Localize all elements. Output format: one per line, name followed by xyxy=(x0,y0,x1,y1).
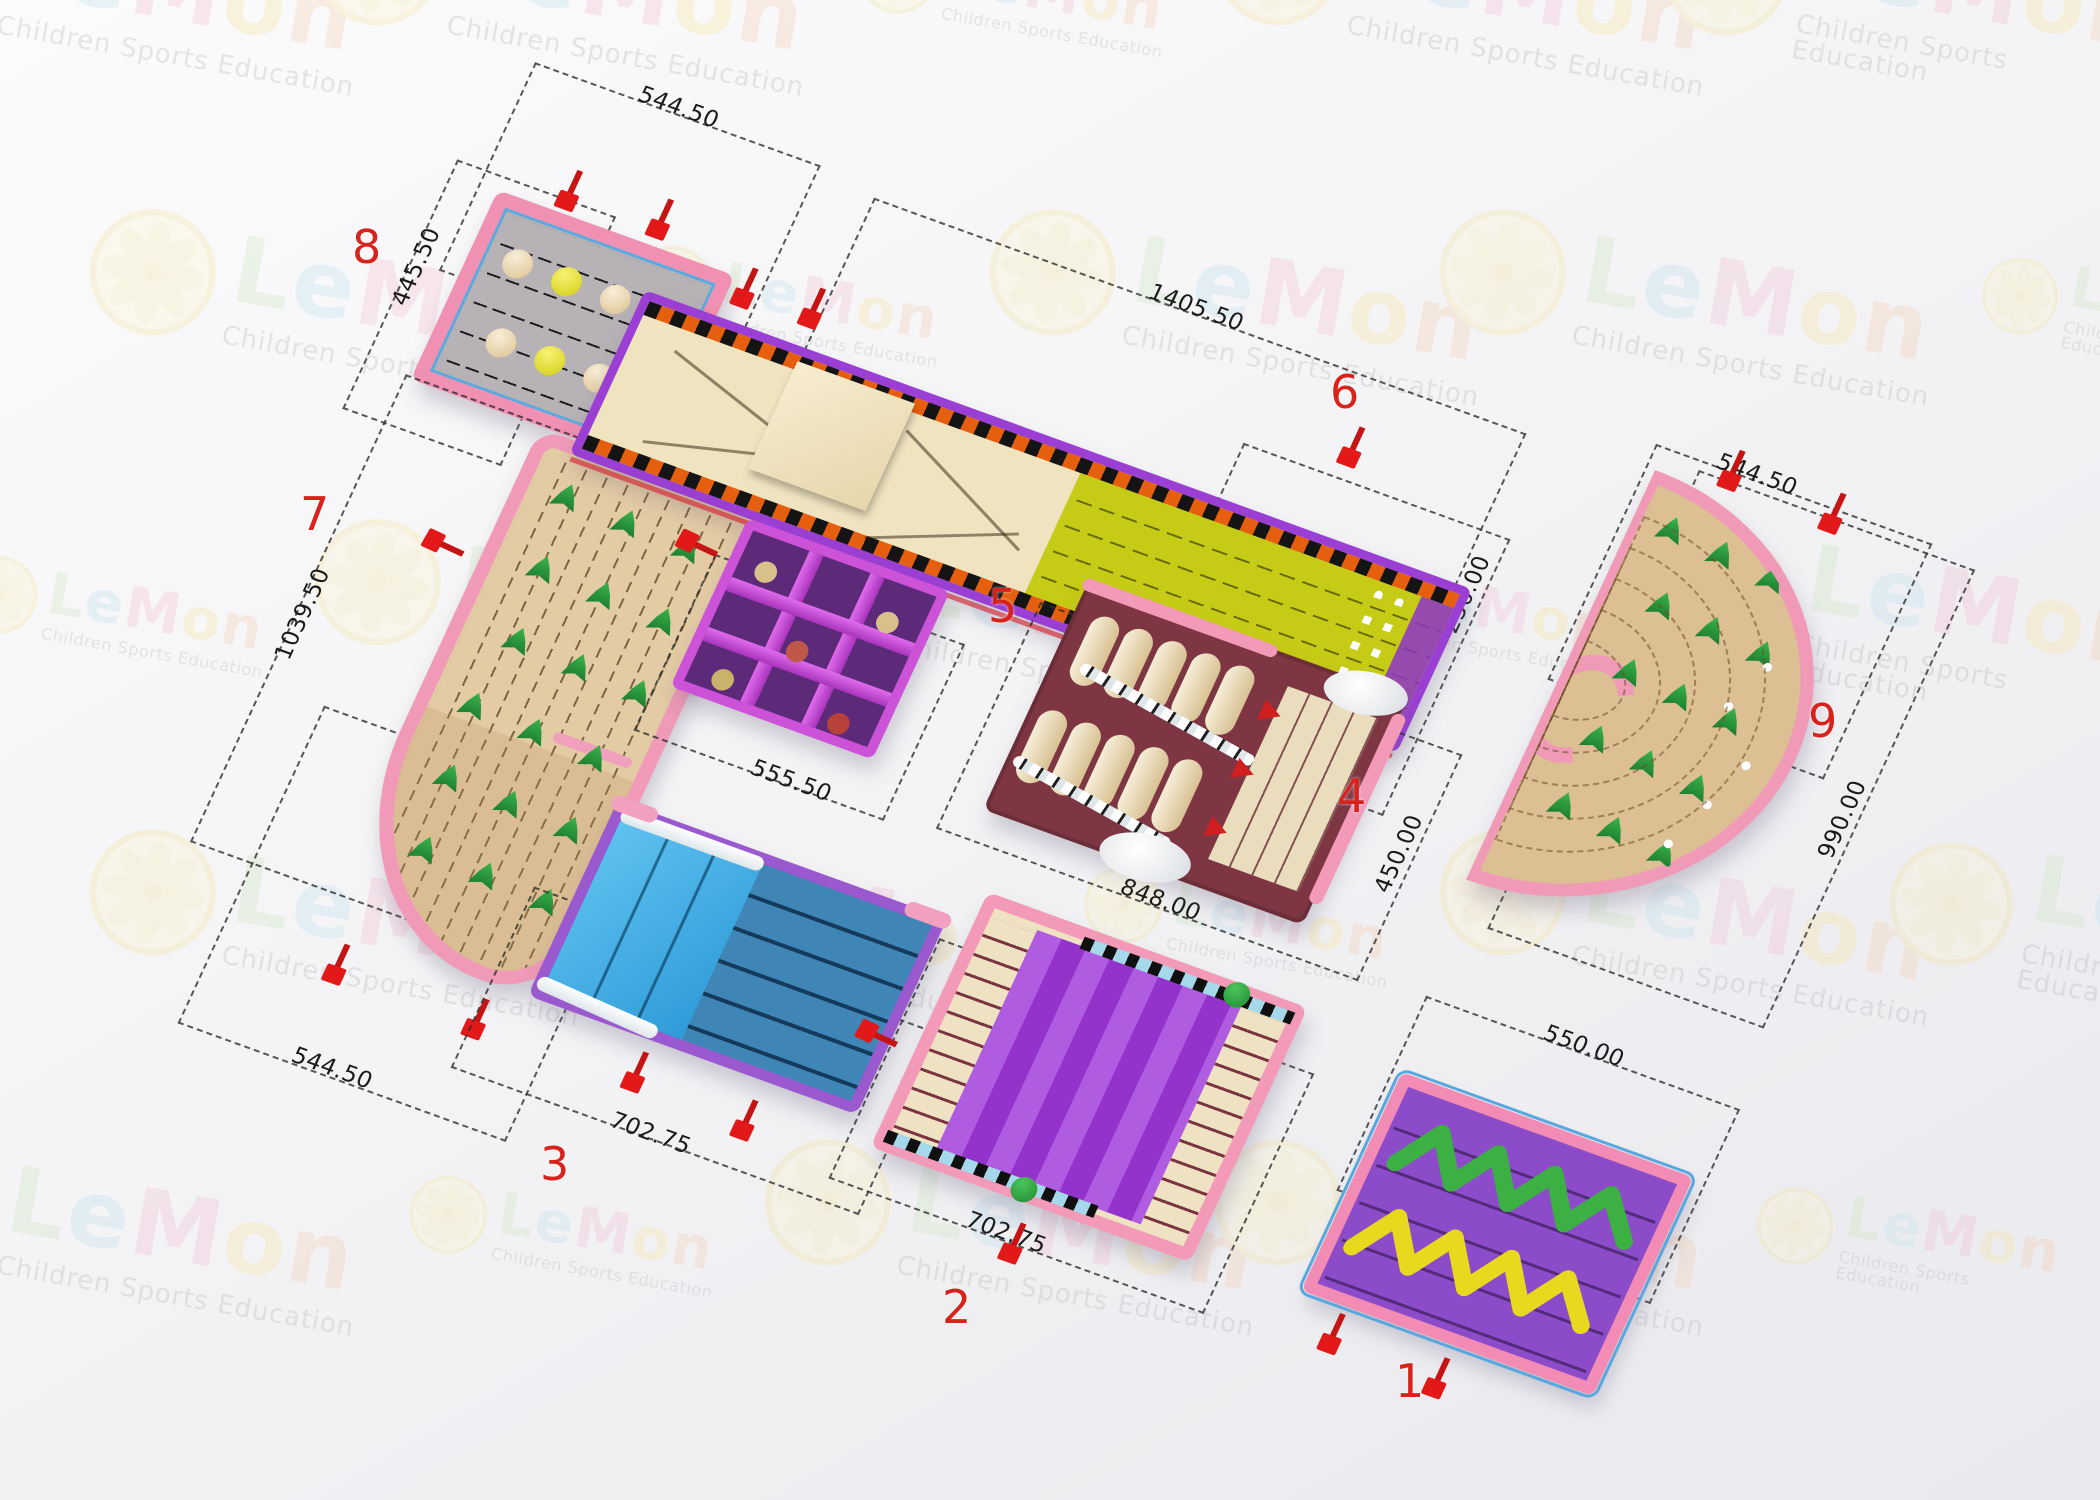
watermark-text: LeMon Children Sports Education xyxy=(2014,843,2100,1054)
watermark-letter: n xyxy=(1854,885,1939,1002)
watermark-letter: o xyxy=(2014,563,2097,680)
watermark-brand: LeMon xyxy=(1841,1188,2067,1282)
watermark-letter: o xyxy=(665,0,748,61)
unit-number-7: 7 xyxy=(300,487,329,541)
watermark-letter: n xyxy=(2078,0,2100,71)
watermark-letter: e xyxy=(1634,227,1716,344)
watermark-subtitle: Children Sports Education xyxy=(40,626,264,681)
lemon-slice-icon xyxy=(0,0,3,38)
lemon-slice-icon xyxy=(1652,0,1800,49)
unit-number-6: 6 xyxy=(1330,365,1359,419)
watermark-subtitle: Children Sports Education xyxy=(0,12,356,101)
lemon-slice-icon xyxy=(1974,250,2066,343)
net-pocket-ball xyxy=(823,710,853,738)
watermark-brand: LeMon xyxy=(1351,0,1724,68)
watermark-subtitle: Children Sports Education xyxy=(0,1252,356,1341)
watermark-letter: L xyxy=(2024,835,2100,951)
watermark-subtitle: Children Sports Education xyxy=(1789,11,2100,124)
watermark-letter: L xyxy=(224,216,302,332)
watermark-letter: L xyxy=(943,0,992,12)
watermark-letter: n xyxy=(2078,574,2100,691)
watermark-brand: LeMon xyxy=(43,565,274,660)
watermark-text: LeMon Children Sports Education xyxy=(40,565,275,681)
watermark-letter: o xyxy=(1340,254,1423,371)
watermark-brand: LeMon xyxy=(451,0,824,68)
watermark-letter: n xyxy=(1116,0,1169,43)
ramp-platform xyxy=(748,361,915,511)
ramp-line xyxy=(865,533,1019,540)
watermark-letter: n xyxy=(729,0,814,72)
watermark-text: LeMon Children Sports Education xyxy=(2059,258,2100,389)
net-bar xyxy=(801,573,884,728)
watermark-subtitle: Children Sports Education xyxy=(1570,322,1932,411)
layout-drawing: LeMon Children Sports Education LeMon Ch… xyxy=(0,0,2100,1500)
watermark-tile: LeMon Children Sports Education xyxy=(1428,197,1949,413)
watermark-brand: LeMon xyxy=(1,0,374,68)
lemon-slice-icon xyxy=(1203,0,1354,38)
watermark-letter: o xyxy=(1974,1207,2025,1279)
watermark-letter: n xyxy=(1629,0,1714,72)
watermark-letter: e xyxy=(59,1157,141,1274)
watermark-letter: M xyxy=(1473,0,1584,49)
watermark-letter: n xyxy=(2013,1214,2066,1287)
watermark-tile: LeMon Children Sports Education xyxy=(852,0,1175,62)
watermark-brand: LeMon xyxy=(1576,224,1949,378)
net-pocket-ball xyxy=(751,558,781,586)
watermark-letter: o xyxy=(176,583,227,655)
watermark-letter: n xyxy=(279,0,364,72)
watermark-letter: M xyxy=(573,0,684,49)
watermark-letter: e xyxy=(530,1186,581,1258)
watermark-letter: e xyxy=(80,566,131,638)
watermark-subtitle: Children Sports Education xyxy=(2014,941,2100,1054)
watermark-brand: LeMon xyxy=(1,1154,374,1308)
watermark-letter: o xyxy=(215,1184,298,1301)
watermark-letter: e xyxy=(2083,845,2100,962)
watermark-brand: LeMon xyxy=(2025,843,2100,995)
lemon-slice-icon xyxy=(1749,1180,1841,1273)
watermark-letter: n xyxy=(1404,265,1489,382)
watermark-letter: o xyxy=(2014,0,2097,59)
watermark-letter: L xyxy=(493,1180,542,1252)
watermark-letter: L xyxy=(1574,216,1652,332)
watermark-text: LeMon Children Sports Education xyxy=(1834,1188,2067,1319)
watermark-brand: LeMon xyxy=(1800,0,2100,65)
watermark-letter: M xyxy=(123,0,234,49)
watermark-letter: n xyxy=(279,1195,364,1312)
lemon-slice-icon xyxy=(303,0,454,38)
lemon-slice-icon xyxy=(0,1127,3,1278)
lemon-slice-icon xyxy=(78,197,229,348)
watermark-text: LeMon Children Sports Education xyxy=(490,1185,725,1301)
watermark-brand: LeMon xyxy=(2066,258,2100,352)
watermark-letter: L xyxy=(0,1146,78,1262)
watermark-letter: M xyxy=(1922,0,2033,48)
watermark-letter: L xyxy=(449,0,527,22)
watermark-letter: e xyxy=(1409,0,1491,33)
watermark-letter: n xyxy=(666,1210,719,1283)
watermark-tile: LeMon Children Sports Education xyxy=(1876,818,2100,1054)
watermark-letter: o xyxy=(215,0,298,61)
unit-number-5: 5 xyxy=(988,579,1017,633)
watermark-tile: LeMon Children Sports Education xyxy=(1748,1173,2067,1319)
watermark-letter: n xyxy=(216,590,269,663)
watermark-letter: o xyxy=(1076,0,1127,36)
watermark-letter: e xyxy=(59,0,141,33)
watermark-letter: M xyxy=(1019,0,1088,29)
white-dot xyxy=(1740,760,1752,771)
watermark-letter: L xyxy=(43,560,92,632)
watermark-letter: o xyxy=(626,1203,677,1275)
lemon-slice-icon xyxy=(1877,829,2025,979)
watermark-letter: M xyxy=(1698,238,1809,360)
watermark-letter: e xyxy=(509,0,591,33)
watermark-subtitle: Children Sports Education xyxy=(490,1246,714,1301)
watermark-letter: M xyxy=(123,1168,234,1290)
watermark-text: LeMon Children Sports Education xyxy=(1570,224,1949,411)
watermark-tile: LeMon Children Sports Education xyxy=(1651,0,2100,124)
watermark-text: LeMon Children Sports Education xyxy=(940,0,1175,61)
watermark-subtitle: Children Sports Education xyxy=(1834,1249,2056,1319)
lemon-slice-icon xyxy=(852,0,945,21)
unit-number-9: 9 xyxy=(1808,694,1837,748)
unit-number-3: 3 xyxy=(540,1137,569,1191)
watermark-letter: M xyxy=(1916,1197,1985,1272)
watermark-letter: L xyxy=(1349,0,1427,22)
watermark-subtitle: Children Sports Education xyxy=(2059,319,2100,389)
unit-number-2: 2 xyxy=(942,1280,971,1334)
lemon-slice-icon xyxy=(0,548,45,641)
watermark-tile: LeMon Children Sports Education xyxy=(0,1127,374,1343)
watermark-letter: e xyxy=(1877,1190,1928,1262)
watermark-text: LeMon Children Sports Education xyxy=(0,0,374,101)
net-pocket-ball xyxy=(708,666,738,694)
unit-number-1: 1 xyxy=(1395,1354,1424,1408)
unit-number-8: 8 xyxy=(352,220,381,274)
watermark-text: LeMon Children Sports Education xyxy=(1345,0,1724,101)
lemon-slice-icon xyxy=(402,1168,495,1261)
watermark-letter: L xyxy=(2065,253,2100,325)
watermark-letter: e xyxy=(980,0,1031,19)
watermark-subtitle: Children Sports Education xyxy=(940,6,1164,61)
watermark-text: LeMon Children Sports Education xyxy=(0,1154,374,1341)
watermark-letter: L xyxy=(1840,1183,1889,1255)
watermark-brand: LeMon xyxy=(943,0,1174,40)
anchor-stake xyxy=(1312,1310,1354,1360)
watermark-letter: n xyxy=(1854,265,1939,382)
watermark-letter: M xyxy=(119,573,188,648)
watermark-letter: e xyxy=(1858,0,1940,32)
watermark-letter: o xyxy=(1565,0,1648,61)
watermark-letter: L xyxy=(0,0,78,22)
watermark-letter: M xyxy=(569,1193,638,1268)
watermark-tile: LeMon Children Sports Education xyxy=(1973,243,2100,389)
watermark-tile: LeMon Children Sports Education xyxy=(0,0,374,103)
watermark-tile: LeMon Children Sports Education xyxy=(1203,0,1724,103)
watermark-letter: o xyxy=(1790,254,1873,371)
watermark-brand: LeMon xyxy=(493,1185,724,1280)
unit-number-4: 4 xyxy=(1337,769,1366,823)
watermark-subtitle: Children Sports Education xyxy=(1345,12,1707,101)
watermark-tile: LeMon Children Sports Education xyxy=(0,548,275,682)
lemon-slice-icon xyxy=(1428,197,1579,348)
watermark-text: LeMon Children Sports Education xyxy=(1789,0,2100,124)
watermark-letter: L xyxy=(1799,0,1877,21)
